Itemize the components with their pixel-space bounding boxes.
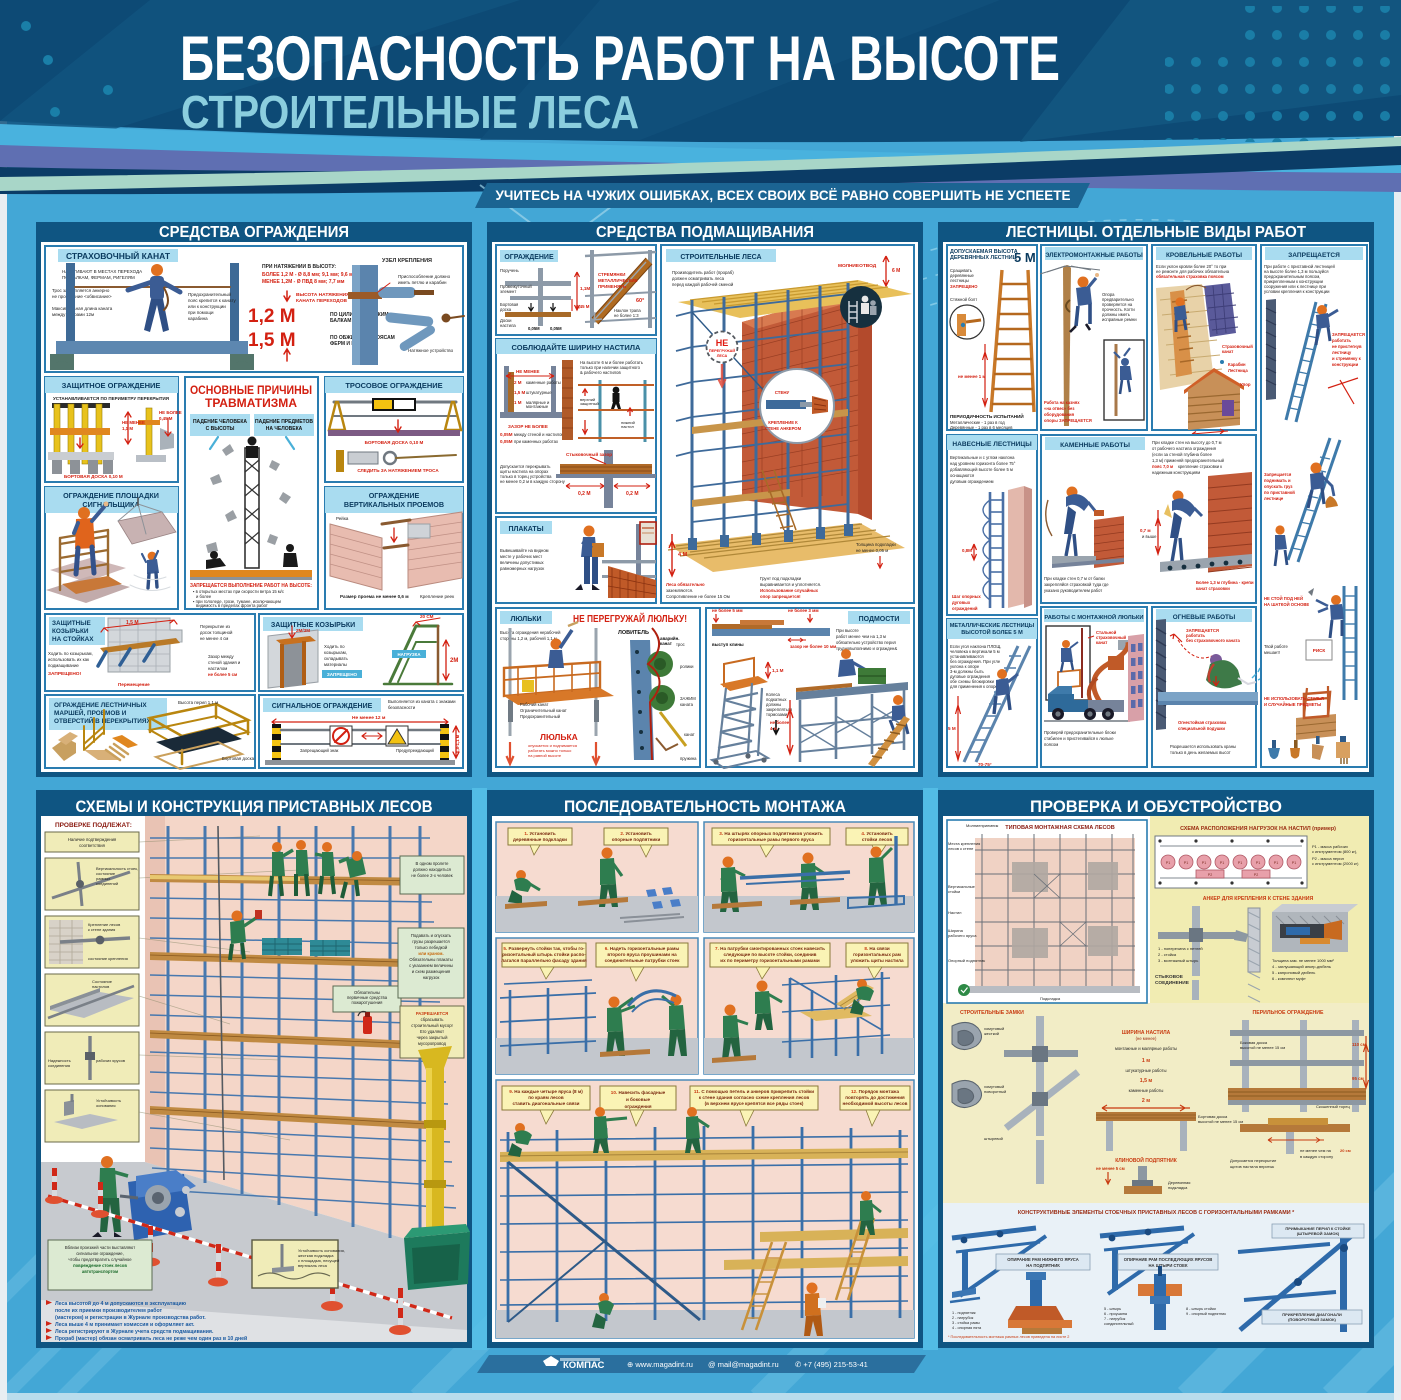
svg-text:соединения: соединения bbox=[48, 1063, 70, 1068]
svg-text:3. На штырях опорных подпятник: 3. На штырях опорных подпятников уложить bbox=[719, 831, 823, 836]
svg-text:Выполняется из каната с знакам: Выполняется из каната с знаками bbox=[388, 699, 456, 704]
svg-text:Его удаляют: Его удаляют bbox=[420, 1029, 444, 1034]
svg-text:дуговым ограждением: дуговым ограждением bbox=[950, 479, 994, 484]
svg-text:Леса выше 4 м принимает комисс: Леса выше 4 м принимает комиссия и оформ… bbox=[55, 1321, 195, 1328]
svg-text:70-75°: 70-75° bbox=[978, 762, 992, 767]
svg-text:1,5 М: 1,5 М bbox=[248, 330, 296, 351]
svg-text:не менее 4 см: не менее 4 см bbox=[200, 636, 228, 641]
svg-text:СРЕДСТВА ПОДМАЩИВАНИЯ: СРЕДСТВА ПОДМАЩИВАНИЯ bbox=[596, 224, 814, 241]
svg-text:0,2 М: 0,2 М bbox=[626, 491, 639, 497]
svg-text:БЕЗОПАСНОСТЬ РАБОТ НА ВЫСОТЕ: БЕЗОПАСНОСТЬ РАБОТ НА ВЫСОТЕ bbox=[180, 24, 1060, 94]
svg-text:равномерных нагрузок: равномерных нагрузок bbox=[500, 566, 544, 571]
svg-text:стабилен и пристегивайся к люл: стабилен и пристегивайся к люльке bbox=[1044, 736, 1114, 741]
svg-text:основания: основания bbox=[96, 1103, 116, 1108]
svg-text:0,05М: 0,05М bbox=[550, 326, 562, 331]
svg-text:выступ клины: выступ клины bbox=[712, 642, 744, 647]
svg-text:второго яруса проушинами на: второго яруса проушинами на bbox=[607, 952, 677, 957]
svg-text:НАГРУЗКА: НАГРУЗКА bbox=[397, 652, 421, 657]
svg-text:РИСК: РИСК bbox=[1313, 648, 1326, 653]
svg-text:ОГРАЖДЕНИЕ: ОГРАЖДЕНИЕ bbox=[504, 254, 554, 261]
svg-text:КАМЕННЫЕ РАБОТЫ: КАМЕННЫЕ РАБОТЫ bbox=[1060, 442, 1130, 449]
svg-text:4 - опорная пята: 4 - опорная пята bbox=[952, 1326, 982, 1330]
svg-text:от рабочего настила ограждения: от рабочего настила ограждения bbox=[1152, 446, 1216, 451]
svg-text:следующие по высоте стойки, со: следующие по высоте стойки, соединив bbox=[723, 951, 816, 957]
svg-text:КАНАТА ПЕРЕХОДОВ: КАНАТА ПЕРЕХОДОВ bbox=[296, 298, 347, 304]
svg-text:1,1 М: 1,1 М bbox=[122, 426, 133, 431]
svg-text:опускать груз: опускать груз bbox=[1264, 484, 1292, 489]
svg-text:7. На патрубки смонтированных: 7. На патрубки смонтированных стоек наве… bbox=[715, 945, 825, 951]
svg-text:НА СТОЙКАХ: НА СТОЙКАХ bbox=[52, 634, 94, 643]
svg-text:соответствия: соответствия bbox=[79, 843, 105, 848]
svg-text:ОПИРАНИЕ РАМ НИЖНЕГО ЯРУСА: ОПИРАНИЕ РАМ НИЖНЕГО ЯРУСА bbox=[1007, 1257, 1079, 1262]
svg-text:5 - капроновый дюбель: 5 - капроновый дюбель bbox=[1272, 970, 1315, 975]
svg-text:Производитель работ (прораб): Производитель работ (прораб) bbox=[672, 270, 734, 275]
svg-text:не более: не более bbox=[770, 720, 790, 725]
svg-text:Максимальная длина каната: Максимальная длина каната bbox=[52, 306, 113, 311]
svg-text:Шаг опорных: Шаг опорных bbox=[952, 594, 981, 599]
svg-text:ПРОВЕРКА И ОБУСТРОЙСТВО: ПРОВЕРКА И ОБУСТРОЙСТВО bbox=[1030, 797, 1282, 816]
svg-text:Прораб (мастер) обязан осматри: Прораб (мастер) обязан осматривать леса … bbox=[55, 1335, 247, 1342]
svg-text:уложить щиты настила: уложить щиты настила bbox=[850, 958, 904, 963]
svg-text:0,05М: 0,05М bbox=[500, 432, 513, 437]
svg-text:специальной подушки: специальной подушки bbox=[1178, 726, 1225, 731]
svg-text:СРЕДСТВА ОГРАЖДЕНИЯ: СРЕДСТВА ОГРАЖДЕНИЯ bbox=[159, 224, 349, 241]
svg-text:Не менее 12 м: Не менее 12 м bbox=[352, 715, 386, 721]
svg-text:ПРИМЕНЯТЬ: ПРИМЕНЯТЬ bbox=[598, 284, 626, 289]
svg-text:канат страховки: канат страховки bbox=[1196, 586, 1230, 591]
svg-text:ЛЮЛЬКА: ЛЮЛЬКА bbox=[540, 732, 578, 742]
svg-text:настила: настила bbox=[500, 323, 516, 328]
svg-text:Подавать и опускать: Подавать и опускать bbox=[411, 933, 452, 938]
svg-text:Молниеприемник: Молниеприемник bbox=[966, 823, 999, 828]
svg-text:Толщина зам. не менее 1000 мм²: Толщина зам. не менее 1000 мм² bbox=[1272, 958, 1335, 963]
svg-text:5. Развернуть стойки так, чтоб: 5. Развернуть стойки так, чтобы го- bbox=[503, 945, 585, 951]
svg-text:штыревой: штыревой bbox=[984, 1136, 1003, 1141]
svg-text:не пристегнув: не пристегнув bbox=[1332, 344, 1362, 349]
svg-text:соединительные патрубки стоек: соединительные патрубки стоек bbox=[605, 957, 681, 963]
svg-text:СОБЛЮДАЙТЕ ШИРИНУ НАСТИЛА: СОБЛЮДАЙТЕ ШИРИНУ НАСТИЛА bbox=[512, 343, 641, 352]
svg-text:ЭЛЕКТРОМОНТАЖНЫЕ РАБОТЫ: ЭЛЕКТРОМОНТАЖНЫЕ РАБОТЫ bbox=[1045, 253, 1143, 259]
svg-text:Предохранительный: Предохранительный bbox=[520, 714, 561, 719]
svg-text:ПЕРИОДИЧНОСТЬ ИСПЫТАНИЙ: ПЕРИОДИЧНОСТЬ ИСПЫТАНИЙ bbox=[950, 412, 1024, 419]
svg-text:0,45 М: 0,45 М bbox=[159, 416, 173, 421]
svg-text:Работа на казнях: Работа на казнях bbox=[1044, 400, 1080, 405]
svg-text:канат: канат bbox=[1096, 640, 1107, 645]
svg-text:не более 1:3: не более 1:3 bbox=[614, 313, 639, 318]
svg-text:СТЫКОВОЕ: СТЫКОВОЕ bbox=[1155, 974, 1184, 980]
svg-text:доска: доска bbox=[500, 307, 512, 312]
svg-text:2М/3М: 2М/3М bbox=[296, 628, 310, 633]
svg-text:каната: каната bbox=[680, 702, 694, 707]
svg-text:2М: 2М bbox=[450, 658, 458, 664]
svg-text:1 М: 1 М bbox=[514, 400, 522, 405]
svg-text:использовать их как: использовать их как bbox=[48, 657, 89, 662]
svg-text:ЗАПРЕЩЕНО: ЗАПРЕЩЕНО bbox=[327, 672, 358, 677]
svg-text:0,45 М: 0,45 М bbox=[576, 304, 590, 309]
svg-text:Вывешивайте на видном: Вывешивайте на видном bbox=[500, 548, 549, 553]
svg-text:Ходить по: Ходить по bbox=[324, 644, 345, 649]
svg-text:ПОСЛЕДОВАТЕЛЬНОСТЬ МОНТАЖА: ПОСЛЕДОВАТЕЛЬНОСТЬ МОНТАЖА bbox=[564, 797, 846, 816]
svg-text:КРОВЕЛЬНЫЕ РАБОТЫ: КРОВЕЛЬНЫЕ РАБОТЫ bbox=[1166, 252, 1242, 259]
svg-text:4 м: 4 м bbox=[770, 726, 777, 731]
svg-text:(ПОВОРОТНЫЙ ЗАМОК): (ПОВОРОТНЫЙ ЗАМОК) bbox=[1288, 1317, 1336, 1322]
svg-text:НЕ: НЕ bbox=[716, 338, 729, 348]
svg-text:ОПИРАНИЕ РАМ ПОСЛЕДУЮЩИХ ЯРУСО: ОПИРАНИЕ РАМ ПОСЛЕДУЮЩИХ ЯРУСОВ bbox=[1124, 1257, 1212, 1262]
svg-text:поворотный: поворотный bbox=[984, 1089, 1006, 1094]
svg-text:надежным конструкциям: надежным конструкциям bbox=[1152, 470, 1200, 475]
svg-text:110 см: 110 см bbox=[1352, 1042, 1366, 1047]
svg-text:трос: трос bbox=[676, 642, 685, 647]
svg-text:ЗАЩИТНЫЕ КОЗЫРЬКИ: ЗАЩИТНЫЕ КОЗЫРЬКИ bbox=[271, 622, 355, 629]
svg-text:ЗАЩИТНЫЕ: ЗАЩИТНЫЕ bbox=[52, 620, 91, 627]
svg-text:1 - подпятник: 1 - подпятник bbox=[952, 1311, 976, 1315]
svg-text:ЗАПРЕЩАЕТСЯ: ЗАПРЕЩАЕТСЯ bbox=[1332, 332, 1365, 337]
svg-text:1,1 М: 1,1 М bbox=[772, 668, 784, 673]
svg-text:монтажные: монтажные bbox=[526, 404, 549, 409]
svg-text:ТРАВМАТИЗМА: ТРАВМАТИЗМА bbox=[205, 396, 297, 410]
svg-text:материалы: материалы bbox=[324, 662, 347, 667]
svg-text:ПЕРИЛЬНОЕ ОГРАЖДЕНИЕ: ПЕРИЛЬНОЕ ОГРАЖДЕНИЕ bbox=[1253, 1010, 1324, 1016]
svg-text:ВЫСОТА НАТЯЖЕНИЯ: ВЫСОТА НАТЯЖЕНИЯ bbox=[296, 292, 350, 298]
svg-text:СТЕНЕ АНКЕРОМ: СТЕНЕ АНКЕРОМ bbox=[765, 426, 802, 431]
svg-text:ТРОСОВОЕ ОГРАЖДЕНИЕ: ТРОСОВОЕ ОГРАЖДЕНИЕ bbox=[345, 381, 442, 390]
svg-text:исправные ремни: исправные ремни bbox=[1102, 317, 1137, 322]
svg-text:мусоропровод: мусоропровод bbox=[418, 1041, 446, 1046]
svg-text:КОМПАС: КОМПАС bbox=[563, 1360, 605, 1371]
svg-text:9. На каждые четыре яруса (8 м: 9. На каждые четыре яруса (8 м) bbox=[509, 1089, 583, 1094]
svg-text:с инструментом (800 кг),: с инструментом (800 кг), bbox=[1312, 849, 1357, 854]
svg-text:Крепление реек: Крепление реек bbox=[420, 594, 455, 599]
svg-text:1,5 м: 1,5 м bbox=[1140, 1078, 1153, 1084]
svg-text:и боковые: и боковые bbox=[626, 1096, 651, 1102]
svg-text:ЛЕСТНИЦЫ. ОТДЕЛЬНЫЕ ВИДЫ РАБОТ: ЛЕСТНИЦЫ. ОТДЕЛЬНЫЕ ВИДЫ РАБОТ bbox=[1006, 224, 1307, 241]
svg-text:Лестница: Лестница bbox=[1228, 368, 1248, 373]
svg-text:щитов настила впритык: щитов настила впритык bbox=[1230, 1164, 1274, 1169]
svg-text:ОСНОВНЫЕ ПРИЧИНЫ: ОСНОВНЫЕ ПРИЧИНЫ bbox=[190, 383, 312, 397]
svg-text:их по периметру горизонтальным: их по периметру горизонтальными рамами bbox=[720, 958, 820, 963]
svg-text:лестнице: лестнице bbox=[1264, 496, 1284, 501]
svg-text:СЛЕДИТЬ ЗА НАТЯЖЕНИЕМ ТРОСА: СЛЕДИТЬ ЗА НАТЯЖЕНИЕМ ТРОСА bbox=[357, 468, 439, 473]
svg-text:СТЕНУ: СТЕНУ bbox=[775, 390, 790, 395]
svg-text:Перекрытие из: Перекрытие из bbox=[200, 624, 230, 629]
svg-text:(не менее): (не менее) bbox=[1136, 1036, 1157, 1041]
svg-text:МОЛНИЕОТВОД: МОЛНИЕОТВОД bbox=[838, 263, 877, 269]
svg-text:зазор не более 10 мм: зазор не более 10 мм bbox=[790, 644, 836, 649]
svg-text:МЕТАЛЛИЧЕСКИЕ: МЕТАЛЛИЧЕСКИЕ bbox=[598, 278, 638, 283]
svg-text:МЕНЕЕ 1,2М - Ø ПВД 8 мм; 7,7 м: МЕНЕЕ 1,2М - Ø ПВД 8 мм; 7,7 мм bbox=[262, 279, 345, 285]
svg-text:6 - проушина: 6 - проушина bbox=[1104, 1312, 1128, 1316]
svg-text:ОГРАЖДЕНИЕ: ОГРАЖДЕНИЕ bbox=[369, 491, 420, 500]
svg-text:При кладке стен 0,7 м от балки: При кладке стен 0,7 м от балки bbox=[1044, 576, 1105, 581]
svg-text:РАБОТЫ С МОНТАЖНОЙ ЛЮЛЬКИ: РАБОТЫ С МОНТАЖНОЙ ЛЮЛЬКИ bbox=[1044, 613, 1143, 621]
svg-text:НА ПОДПЯТНИК: НА ПОДПЯТНИК bbox=[1026, 1263, 1060, 1268]
svg-text:0,8М: 0,8М bbox=[962, 548, 972, 553]
svg-text:мешает!: мешает! bbox=[1264, 650, 1280, 655]
svg-text:НА ШАТКОЙ ОСНОВЕ: НА ШАТКОЙ ОСНОВЕ bbox=[1264, 602, 1309, 607]
svg-text:Леса регистрируют в Журнале уч: Леса регистрируют в Журнале учета средст… bbox=[55, 1329, 214, 1335]
svg-text:оснащаются: оснащаются bbox=[950, 473, 974, 478]
svg-text:по приставной: по приставной bbox=[1264, 490, 1295, 495]
svg-text:РАЗРЕШАЕТСЯ: РАЗРЕШАЕТСЯ bbox=[416, 1011, 448, 1016]
svg-text:обязательная страховка поясом: обязательная страховка поясом bbox=[1156, 274, 1224, 279]
svg-text:настилов: настилов bbox=[92, 984, 109, 989]
svg-text:Р2: Р2 bbox=[1254, 873, 1258, 877]
svg-text:карабина: карабина bbox=[188, 316, 208, 321]
svg-text:12. Порядок монтажа: 12. Порядок монтажа bbox=[851, 1089, 900, 1094]
svg-text:не менее 5 см: не менее 5 см bbox=[1096, 1166, 1125, 1171]
svg-text:опор запрещается!: опор запрещается! bbox=[760, 594, 801, 599]
svg-text:только в день желаемых высот: только в день желаемых высот bbox=[1170, 750, 1231, 755]
svg-text:строительный мусор!: строительный мусор! bbox=[411, 1023, 452, 1028]
svg-text:сбрасывать: сбрасывать bbox=[421, 1017, 445, 1022]
svg-text:не менее 0,05 м: не менее 0,05 м bbox=[856, 548, 888, 553]
svg-text:УЧИТЕСЬ НА ЧУЖИХ ОШИБКАХ, ВСЕХ: УЧИТЕСЬ НА ЧУЖИХ ОШИБКАХ, ВСЕХ СВОИХ ВСЁ… bbox=[496, 188, 1071, 203]
svg-text:Вертикальные и с углом наклона: Вертикальные и с углом наклона bbox=[950, 455, 1015, 460]
svg-text:нагрузок: нагрузок bbox=[423, 975, 440, 980]
svg-text:Рабочий канат: Рабочий канат bbox=[520, 702, 548, 707]
svg-text:конструкции: конструкции bbox=[1332, 362, 1359, 367]
svg-text:соединений: соединений bbox=[96, 881, 118, 886]
svg-text:0,05М: 0,05М bbox=[500, 439, 513, 444]
svg-text:ризонтальный штырь стойки расп: ризонтальный штырь стойки распо- bbox=[502, 951, 586, 957]
svg-text:не менее 0,2 м в каждую сторон: не менее 0,2 м в каждую сторону bbox=[500, 479, 566, 484]
svg-text:Р1: Р1 bbox=[1238, 861, 1242, 865]
svg-text:оборудования: оборудования bbox=[1044, 412, 1075, 417]
svg-text:Приспособление должно: Приспособление должно bbox=[398, 274, 451, 279]
svg-text:работать: работать bbox=[1332, 338, 1351, 343]
svg-text:Стяжной болт: Стяжной болт bbox=[950, 297, 977, 302]
svg-text:пожаротушения: пожаротушения bbox=[352, 1000, 383, 1005]
svg-text:или краном.: или краном. bbox=[418, 951, 443, 956]
svg-text:при помощи: при помощи bbox=[188, 310, 214, 315]
svg-text:Сопротивление не более 15 Ом: Сопротивление не более 15 Ом bbox=[666, 594, 730, 599]
svg-text:Карабин: Карабин bbox=[1228, 362, 1246, 367]
svg-text:С ВЫСОТЫ: С ВЫСОТЫ bbox=[206, 426, 235, 432]
svg-text:пружина: пружина bbox=[680, 756, 697, 761]
svg-text:Допускается перекрытие: Допускается перекрытие bbox=[1230, 1158, 1277, 1163]
svg-text:горизонтальные рамы первого яр: горизонтальные рамы первого яруса bbox=[728, 837, 814, 842]
svg-text:ограждения: ограждения bbox=[624, 1104, 651, 1109]
svg-text:ЗАПРЕЩЕНО: ЗАПРЕЩЕНО bbox=[950, 284, 978, 289]
svg-text:не менее 1 м: не менее 1 м bbox=[958, 374, 986, 379]
svg-text:0,7 м: 0,7 м bbox=[1140, 528, 1151, 533]
svg-text:на равной высоте: на равной высоте bbox=[528, 753, 562, 758]
svg-text:стеной здания и: стеной здания и bbox=[208, 660, 241, 665]
svg-text:не провисание <обвисание>: не провисание <обвисание> bbox=[52, 294, 112, 299]
svg-text:видимость в пределах фронта ра: видимость в пределах фронта работ bbox=[196, 603, 268, 608]
svg-text:ставить диагональные связи: ставить диагональные связи bbox=[512, 1101, 579, 1106]
svg-text:Перемещение: Перемещение bbox=[118, 682, 150, 687]
svg-text:НА ЧЕЛОВЕКА: НА ЧЕЛОВЕКА bbox=[266, 426, 303, 432]
svg-text:ПРОВЕРКЕ ПОДЛЕЖАТ:: ПРОВЕРКЕ ПОДЛЕЖАТ: bbox=[55, 822, 132, 829]
svg-text:опоры ЗАПРЕЩАЕТСЯ: опоры ЗАПРЕЩАЕТСЯ bbox=[1044, 418, 1092, 423]
svg-text:настил: настил bbox=[621, 424, 635, 429]
svg-text:автотранспортом: автотранспортом bbox=[82, 1269, 118, 1274]
svg-text:стойки: стойки bbox=[948, 889, 960, 894]
svg-text:пояс 7,0 м: пояс 7,0 м bbox=[1152, 464, 1173, 469]
svg-text:Бортовая доска: Бортовая доска bbox=[222, 756, 255, 761]
svg-text:УЗЕЛ КРЕПЛЕНИЯ: УЗЕЛ КРЕПЛЕНИЯ bbox=[382, 258, 432, 264]
svg-text:Трос закрепляется анкерно: Трос закрепляется анкерно bbox=[52, 288, 110, 293]
svg-text:2 м: 2 м bbox=[1142, 1098, 1150, 1104]
svg-text:между стеной и настилом: между стеной и настилом bbox=[514, 432, 564, 437]
svg-text:2 - патрубок: 2 - патрубок bbox=[952, 1316, 974, 1320]
svg-text:ЗАПРЕЩЕНО!: ЗАПРЕЩЕНО! bbox=[48, 671, 82, 677]
svg-text:20 см: 20 см bbox=[1340, 1148, 1351, 1153]
svg-text:6 М: 6 М bbox=[892, 268, 900, 274]
svg-text:НЕ ПЕРЕГРУЖАЙ ЛЮЛЬКУ!: НЕ ПЕРЕГРУЖАЙ ЛЮЛЬКУ! bbox=[573, 612, 687, 625]
svg-text:1. Установить: 1. Установить bbox=[524, 831, 556, 836]
svg-text:обязательно устройство перил: обязательно устройство перил bbox=[836, 640, 897, 645]
svg-text:СИГНАЛЬНОЕ ОГРАЖДЕНИЕ: СИГНАЛЬНОЕ ОГРАЖДЕНИЕ bbox=[272, 703, 373, 710]
svg-text:Предохранительный: Предохранительный bbox=[188, 291, 232, 297]
svg-text:лагался параллельно фасаду зда: лагался параллельно фасаду здания bbox=[501, 957, 587, 963]
svg-text:При кладке стен на высоту до 0: При кладке стен на высоту до 0,7 м bbox=[1152, 440, 1222, 445]
svg-text:стойки лесов: стойки лесов bbox=[862, 836, 892, 842]
svg-text:лесов к стене: лесов к стене bbox=[948, 846, 974, 851]
svg-text:Обязательны плакаты: Обязательны плакаты bbox=[409, 957, 452, 962]
svg-text:8 - штырь стойки: 8 - штырь стойки bbox=[1186, 1307, 1216, 1311]
svg-text:СОЕДИНЕНИЕ: СОЕДИНЕНИЕ bbox=[1155, 980, 1190, 986]
svg-text:СХЕМЫ И КОНСТРУКЦИЯ ПРИСТАВНЫХ: СХЕМЫ И КОНСТРУКЦИЯ ПРИСТАВНЫХ ЛЕСОВ bbox=[76, 797, 433, 816]
svg-text:2. Установить: 2. Установить bbox=[620, 831, 652, 836]
svg-text:должно находиться: должно находиться bbox=[413, 867, 451, 872]
svg-text:НА ШТЫРИ СТОЕК: НА ШТЫРИ СТОЕК bbox=[1148, 1263, 1187, 1268]
svg-text:или к конструкции: или к конструкции bbox=[188, 304, 226, 309]
svg-text:НЕ ИСПОЛЬЗОВАТЬ СТУЛЬЯ: НЕ ИСПОЛЬЗОВАТЬ СТУЛЬЯ bbox=[1264, 696, 1324, 701]
svg-text:в каждую сторону: в каждую сторону bbox=[1300, 1154, 1333, 1159]
svg-text:через закрытый: через закрытый bbox=[417, 1035, 449, 1040]
svg-text:И СЛУЧАЙНЫЕ ПРЕДМЕТЫ: И СЛУЧАЙНЫЕ ПРЕДМЕТЫ bbox=[1264, 702, 1321, 707]
svg-text:КОНСТРУКТИВНЫЕ ЭЛЕМЕНТЫ СТОЕЧН: КОНСТРУКТИВНЫЕ ЭЛЕМЕНТЫ СТОЕЧНЫХ ПРИСТАВ… bbox=[1018, 1210, 1295, 1216]
svg-text:СТРОИТЕЛЬНЫЕ ЛЕСА: СТРОИТЕЛЬНЫЕ ЛЕСА bbox=[680, 254, 761, 261]
svg-text:Огнестойкая страховка: Огнестойкая страховка bbox=[1178, 720, 1227, 725]
svg-text:пояс крепится к канату: пояс крепится к канату bbox=[188, 298, 237, 303]
svg-text:рабочего яруса: рабочего яруса bbox=[948, 933, 977, 938]
svg-text:ограждений: ограждений bbox=[952, 606, 978, 611]
svg-text:6 - комплект муфт: 6 - комплект муфт bbox=[1272, 976, 1306, 981]
svg-text:Опорный подпятник: Опорный подпятник bbox=[948, 958, 985, 963]
svg-text:грузы разрешается: грузы разрешается bbox=[412, 939, 449, 944]
svg-text:штукатурные работы: штукатурные работы bbox=[1126, 1068, 1167, 1073]
svg-text:Ходить по козырькам,: Ходить по козырькам, bbox=[48, 651, 93, 656]
svg-text:козырькам,: козырькам, bbox=[324, 650, 347, 655]
svg-text:штукатурные: штукатурные bbox=[526, 390, 552, 395]
svg-text:не более 3 мм: не более 3 мм bbox=[788, 608, 819, 613]
svg-text:Разрешается использовать краны: Разрешается использовать краны bbox=[1170, 744, 1236, 749]
svg-text:подкладка: подкладка bbox=[1168, 1185, 1188, 1190]
svg-text:соединительный: соединительный bbox=[1104, 1322, 1133, 1326]
svg-text:высотой не менее 15 см: высотой не менее 15 см bbox=[1240, 1045, 1285, 1050]
svg-text:указано руководителем работ: указано руководителем работ bbox=[1044, 588, 1102, 593]
svg-text:⊕ www.magadint.ru: ⊕ www.magadint.ru bbox=[627, 1360, 693, 1369]
svg-text:4 М: 4 М bbox=[678, 552, 688, 558]
svg-text:добавляющей высоте более 5 м: добавляющей высоте более 5 м bbox=[950, 467, 1013, 472]
svg-text:ПЕРЕГРУЖАЙ: ПЕРЕГРУЖАЙ bbox=[709, 349, 735, 353]
svg-text:повторять до достижения: повторять до достижения bbox=[845, 1095, 905, 1100]
svg-text:поднимать и: поднимать и bbox=[1264, 478, 1291, 483]
svg-text:8. На связи: 8. На связи bbox=[864, 946, 890, 951]
svg-text:(мастером) и регистрации в Жур: (мастером) и регистрации в Журнале произ… bbox=[55, 1314, 206, 1321]
svg-text:каменные работы: каменные работы bbox=[526, 380, 561, 385]
svg-text:0,8-1,1 м: 0,8-1,1 м bbox=[455, 735, 460, 753]
svg-text:Запрещающий знак: Запрещающий знак bbox=[300, 748, 339, 753]
svg-text:4. Установить: 4. Установить bbox=[861, 831, 893, 836]
svg-text:2 М: 2 М bbox=[514, 380, 522, 385]
svg-text:Предупреждающий: Предупреждающий bbox=[396, 748, 434, 753]
svg-text:безопасности: безопасности bbox=[388, 705, 416, 710]
svg-text:Р2: Р2 bbox=[1208, 873, 1212, 877]
svg-text:ВЕРТИКАЛЬНЫХ ПРОЕМОВ: ВЕРТИКАЛЬНЫХ ПРОЕМОВ bbox=[344, 500, 444, 509]
svg-text:выравнивается и уплотняется.: выравнивается и уплотняется. bbox=[760, 582, 821, 587]
svg-text:дуговых: дуговых bbox=[952, 600, 971, 605]
svg-text:деревянные подкладки: деревянные подкладки bbox=[513, 837, 567, 842]
svg-text:Ограничительный канат: Ограничительный канат bbox=[520, 708, 567, 713]
svg-text:0,2 М: 0,2 М bbox=[578, 491, 591, 497]
svg-text:Твой работе: Твой работе bbox=[1264, 644, 1289, 649]
svg-text:сигнальное ограждение,: сигнальное ограждение, bbox=[76, 1251, 124, 1256]
svg-text:(в верхнем ярусе крепятся все: (в верхнем ярусе крепятся все ряды стоек… bbox=[705, 1101, 804, 1106]
svg-text:КОЗЫРЬКИ: КОЗЫРЬКИ bbox=[52, 628, 89, 635]
svg-text:повреждение стоек лесов: повреждение стоек лесов bbox=[73, 1263, 127, 1268]
svg-text:1,1М: 1,1М bbox=[580, 286, 590, 291]
svg-text:рабочих ярусов: рабочих ярусов bbox=[96, 1058, 125, 1063]
svg-text:высотой не менее 15 см: высотой не менее 15 см bbox=[1198, 1119, 1243, 1124]
svg-text:Р1: Р1 bbox=[1184, 861, 1188, 865]
svg-text:опорные подпятники: опорные подпятники bbox=[612, 837, 661, 842]
svg-text:состояние крепления: состояние крепления bbox=[88, 956, 128, 961]
svg-text:досок толщиной: досок толщиной bbox=[200, 630, 233, 635]
svg-text:складывать: складывать bbox=[324, 656, 349, 661]
svg-text:1 - поперечина с петлей: 1 - поперечина с петлей bbox=[1158, 946, 1203, 951]
svg-text:10. Навесить фасадные: 10. Навесить фасадные bbox=[611, 1089, 666, 1095]
svg-text:ТИПОВАЯ МОНТАЖНАЯ СХЕМА ЛЕСОВ: ТИПОВАЯ МОНТАЖНАЯ СХЕМА ЛЕСОВ bbox=[1005, 825, 1115, 831]
svg-text:Запрещается: Запрещается bbox=[1264, 472, 1292, 477]
svg-text:Леса высотой до 4 м допускаютс: Леса высотой до 4 м допускаются в эксплу… bbox=[55, 1300, 187, 1307]
svg-text:каменные работы: каменные работы bbox=[1129, 1088, 1164, 1093]
svg-text:и выше: и выше bbox=[1142, 534, 1157, 539]
svg-text:Р1: Р1 bbox=[1166, 861, 1170, 865]
svg-text:ЗАЖИМ: ЗАЖИМ bbox=[680, 696, 696, 701]
svg-text:МАРШЕЙ, ПРОЕМОВ И: МАРШЕЙ, ПРОЕМОВ И bbox=[54, 708, 127, 717]
svg-text:не менее чем на: не менее чем на bbox=[1300, 1148, 1332, 1153]
svg-text:над уровнем горизонта более 75: над уровнем горизонта более 75° bbox=[950, 461, 1016, 466]
svg-text:7 - патрубок: 7 - патрубок bbox=[1104, 1317, 1126, 1321]
svg-text:крепление страховки к: крепление страховки к bbox=[1178, 464, 1222, 469]
svg-text:АНКЕР ДЛЯ КРЕПЛЕНИЯ К СТЕНЕ ЗД: АНКЕР ДЛЯ КРЕПЛЕНИЯ К СТЕНЕ ЗДАНИЯ bbox=[1203, 896, 1314, 902]
svg-text:СИГНАЛЬЩИКА: СИГНАЛЬЩИКА bbox=[82, 500, 139, 509]
svg-text:Поручень: Поручень bbox=[500, 268, 520, 273]
svg-text:Р1: Р1 bbox=[1292, 861, 1296, 865]
svg-text:2 - стойка: 2 - стойка bbox=[1158, 952, 1177, 957]
svg-text:ПЛАКАТЫ: ПЛАКАТЫ bbox=[508, 526, 543, 533]
svg-text:Скошенный торец: Скошенный торец bbox=[1316, 1104, 1350, 1109]
svg-text:Леса обязательно: Леса обязательно bbox=[666, 582, 705, 587]
svg-text:СТРЕМЯНКИ: СТРЕМЯНКИ bbox=[598, 272, 625, 277]
svg-text:работ менее чем на 1,3 м: работ менее чем на 1,3 м bbox=[836, 634, 886, 639]
svg-text:1,3 м) применяй предохранитель: 1,3 м) применяй предохранительный bbox=[1152, 458, 1225, 463]
svg-text:ЛОВИТЕЛЬ: ЛОВИТЕЛЬ bbox=[618, 630, 649, 636]
svg-text:ЗАЩИТНОЕ ОГРАЖДЕНИЕ: ЗАЩИТНОЕ ОГРАЖДЕНИЕ bbox=[62, 381, 161, 390]
svg-text:ЛЕСА: ЛЕСА bbox=[717, 354, 728, 358]
svg-text:иметь петлю и карабин: иметь петлю и карабин bbox=[398, 280, 447, 285]
svg-text:и схем размещения: и схем размещения bbox=[412, 969, 450, 974]
svg-text:ВЫСОТОЙ БОЛЕЕ 5 М: ВЫСОТОЙ БОЛЕЕ 5 М bbox=[961, 628, 1023, 636]
svg-text:поясом: поясом bbox=[1044, 742, 1058, 747]
svg-text:и стремянку к: и стремянку к bbox=[1332, 356, 1362, 361]
svg-text:канат: канат bbox=[660, 641, 673, 646]
svg-text:для применения к опоре: для применения к опоре bbox=[950, 684, 998, 689]
